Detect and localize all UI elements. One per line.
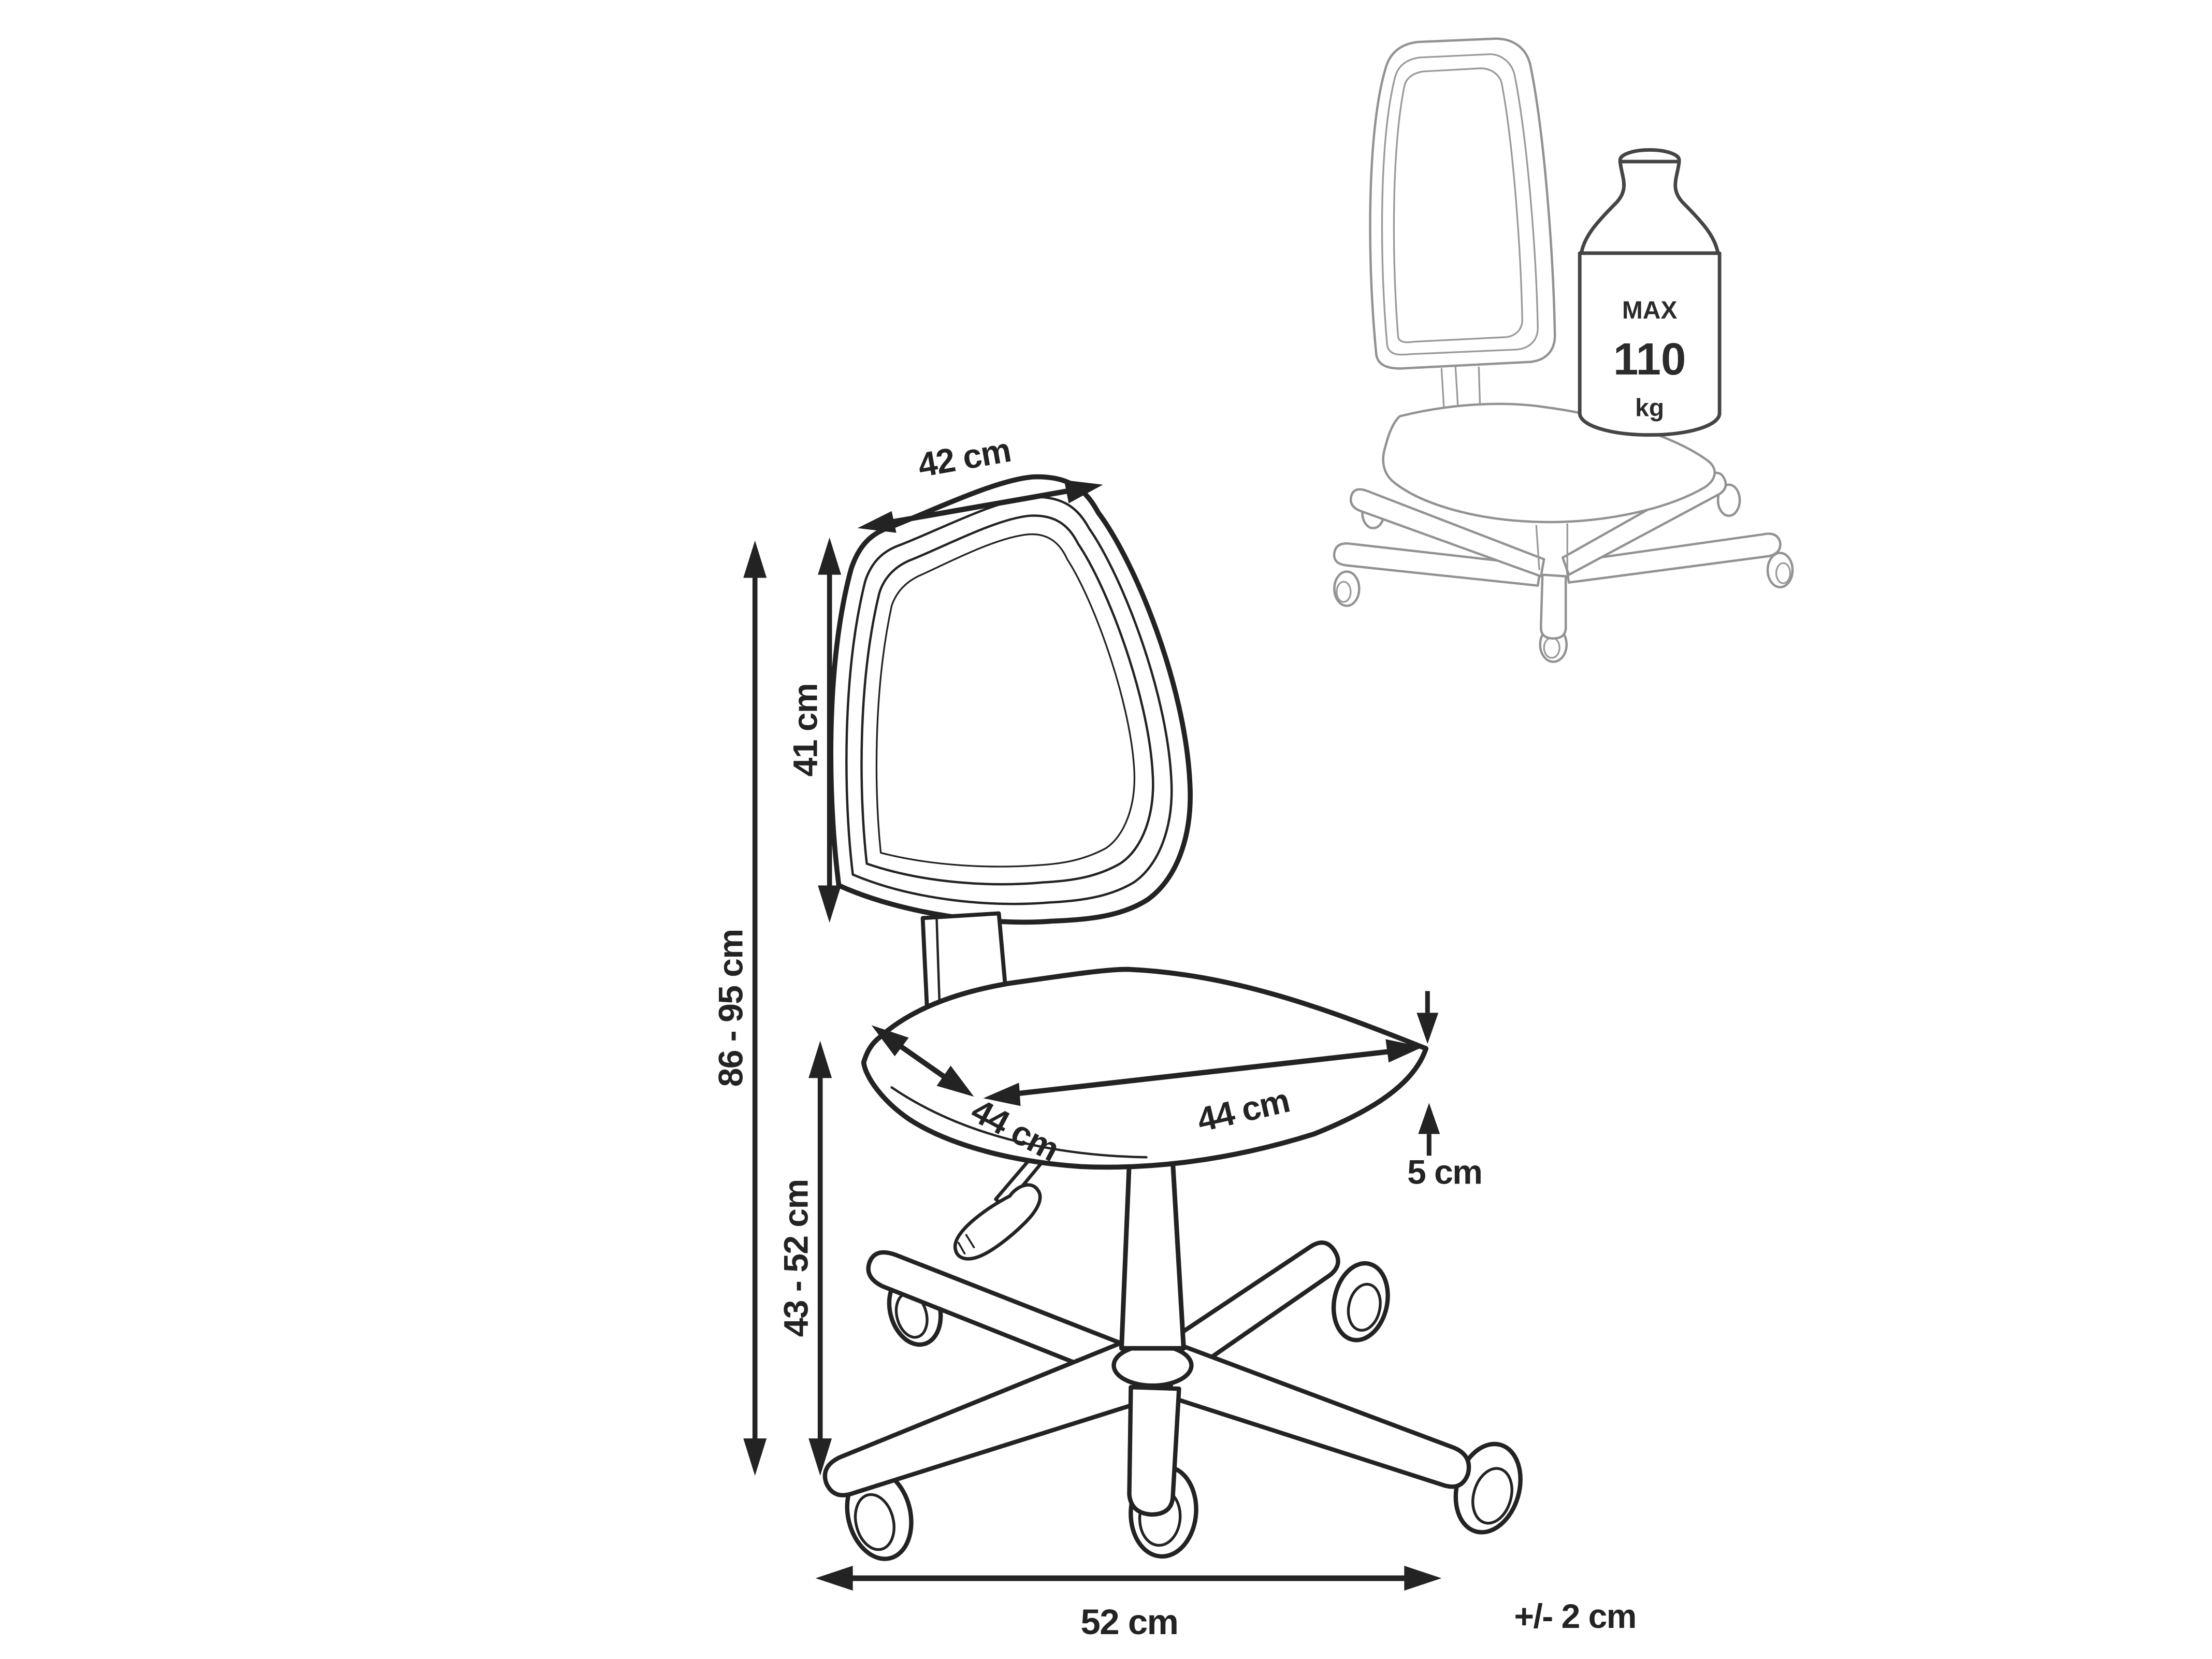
base-arm-front <box>1129 1387 1179 1514</box>
arrow-up-icon <box>818 538 841 575</box>
weight-icon: MAX 110 kg <box>1580 150 1719 435</box>
arrow-left-icon <box>816 1566 853 1591</box>
arrow-up-icon <box>808 1041 832 1078</box>
inset-base-arm-front <box>1541 575 1566 639</box>
max-load-inset: MAX 110 kg <box>1334 39 1792 662</box>
overall-height-label: 86 - 95 cm <box>712 929 750 1087</box>
seat-outline <box>864 969 1426 1167</box>
base-hub <box>1114 1345 1191 1386</box>
gas-lift-column <box>1121 1162 1183 1348</box>
backrest-height-label: 41 cm <box>786 684 825 777</box>
arrow-right-icon <box>1404 1566 1441 1591</box>
backrest-outline <box>831 477 1190 922</box>
base-arm-right <box>1168 1345 1469 1487</box>
tolerance-label: +/- 2 cm <box>1514 1597 1636 1635</box>
base-arm-left <box>825 1342 1150 1495</box>
inset-chair <box>1334 39 1792 662</box>
arrow-left-icon <box>858 511 897 533</box>
dim-seat-thickness: 5 cm <box>1407 991 1482 1191</box>
seat-thickness-label: 5 cm <box>1407 1152 1482 1191</box>
caster-back-right <box>1327 1258 1395 1345</box>
weight-neck <box>1581 162 1718 253</box>
dim-overall-height: 86 - 95 cm <box>712 541 767 1476</box>
max-load-value: 110 <box>1613 334 1686 384</box>
arrow-up-icon <box>743 541 767 578</box>
arrow-down-icon <box>743 1438 767 1476</box>
arrow-down-icon <box>818 885 841 922</box>
arrow-down-icon <box>1416 1013 1438 1044</box>
backrest <box>831 477 1190 922</box>
inset-caster-left <box>1334 572 1359 606</box>
inset-caster-right <box>1768 553 1792 587</box>
chair-dimensions-diagram: 86 - 95 cm 41 cm 43 - 52 cm 42 cm 44 cm <box>0 0 2212 1659</box>
inset-backrest-outline <box>1370 39 1555 369</box>
diagram-page: 86 - 95 cm 41 cm 43 - 52 cm 42 cm 44 cm <box>0 0 2212 1659</box>
dim-seat-height: 43 - 52 cm <box>777 1041 832 1476</box>
max-load-unit: kg <box>1635 395 1664 422</box>
base-width-label: 52 cm <box>1080 1602 1178 1642</box>
dim-base-width: 52 cm <box>816 1566 1442 1642</box>
seat-height-label: 43 - 52 cm <box>777 1179 815 1337</box>
arrow-up-icon <box>1418 1103 1440 1134</box>
backrest-width-label: 42 cm <box>915 430 1014 484</box>
max-load-max-label: MAX <box>1622 297 1678 324</box>
seat <box>864 969 1426 1167</box>
